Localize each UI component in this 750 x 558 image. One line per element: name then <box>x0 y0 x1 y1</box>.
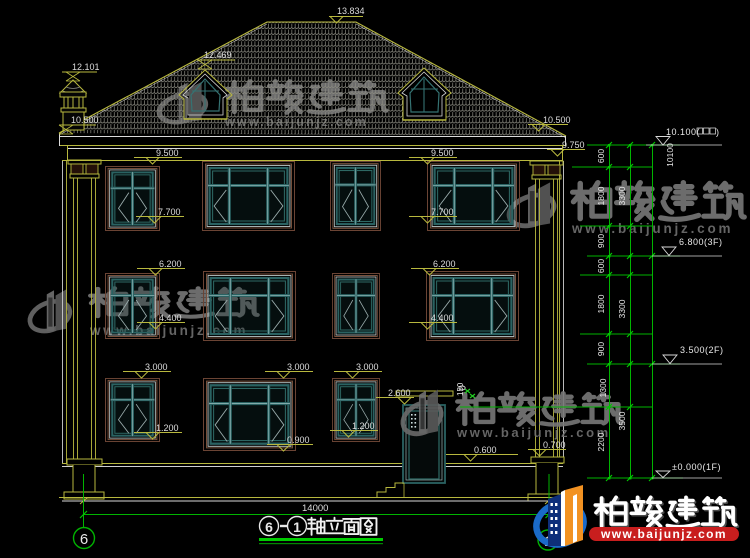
svg-text:9.750: 9.750 <box>562 140 585 150</box>
svg-text:600: 600 <box>596 259 606 273</box>
svg-text:150: 150 <box>456 382 465 396</box>
svg-text:10100: 10100 <box>665 143 675 167</box>
svg-text:±0.000(1F): ±0.000(1F) <box>672 462 721 472</box>
svg-text:0.700: 0.700 <box>543 440 566 450</box>
svg-text:1300: 1300 <box>598 378 608 397</box>
svg-text:2200: 2200 <box>596 432 606 451</box>
svg-text:9.500: 9.500 <box>156 148 179 158</box>
svg-text:9.500: 9.500 <box>431 148 454 158</box>
svg-text:3300: 3300 <box>617 186 627 205</box>
svg-text:10.100(: 10.100( <box>666 127 700 137</box>
svg-text:3.500(2F): 3.500(2F) <box>680 345 724 355</box>
svg-text:3500: 3500 <box>617 411 627 430</box>
svg-text:900: 900 <box>596 234 606 248</box>
svg-text:3.000: 3.000 <box>356 362 379 372</box>
svg-text:6.200: 6.200 <box>159 259 182 269</box>
svg-text:1: 1 <box>293 519 301 535</box>
svg-text:4.400: 4.400 <box>431 313 454 323</box>
svg-text:6: 6 <box>265 519 273 535</box>
svg-text:6: 6 <box>80 531 88 548</box>
svg-text:14000: 14000 <box>302 503 328 514</box>
svg-text:0.600: 0.600 <box>474 445 497 455</box>
svg-text:): ) <box>716 127 720 137</box>
svg-text:www.baijunjz.com: www.baijunjz.com <box>456 425 611 440</box>
svg-text:3300: 3300 <box>617 299 627 318</box>
svg-text:6.200: 6.200 <box>433 259 456 269</box>
svg-text:600: 600 <box>596 149 606 163</box>
svg-text:6.800(3F): 6.800(3F) <box>679 237 723 247</box>
svg-text:10.500: 10.500 <box>543 115 571 125</box>
svg-text:13.834: 13.834 <box>337 6 365 16</box>
svg-text:7.700: 7.700 <box>158 207 181 217</box>
svg-text:1.200: 1.200 <box>156 423 179 433</box>
svg-text:3.000: 3.000 <box>287 362 310 372</box>
svg-text:7.700: 7.700 <box>431 207 454 217</box>
svg-text:12.469: 12.469 <box>204 50 232 60</box>
svg-text:1800: 1800 <box>596 294 606 313</box>
svg-text:12.101: 12.101 <box>72 62 100 72</box>
svg-text:1800: 1800 <box>596 186 606 205</box>
svg-text:0.900: 0.900 <box>287 435 310 445</box>
svg-text:www.baijunjz.com: www.baijunjz.com <box>600 527 727 541</box>
svg-text:2.600: 2.600 <box>388 388 411 398</box>
svg-text:900: 900 <box>596 342 606 356</box>
svg-text:10.500: 10.500 <box>71 115 99 125</box>
svg-text:3.000: 3.000 <box>145 362 168 372</box>
svg-text:1.200: 1.200 <box>352 421 375 431</box>
svg-text:4.400: 4.400 <box>159 313 182 323</box>
